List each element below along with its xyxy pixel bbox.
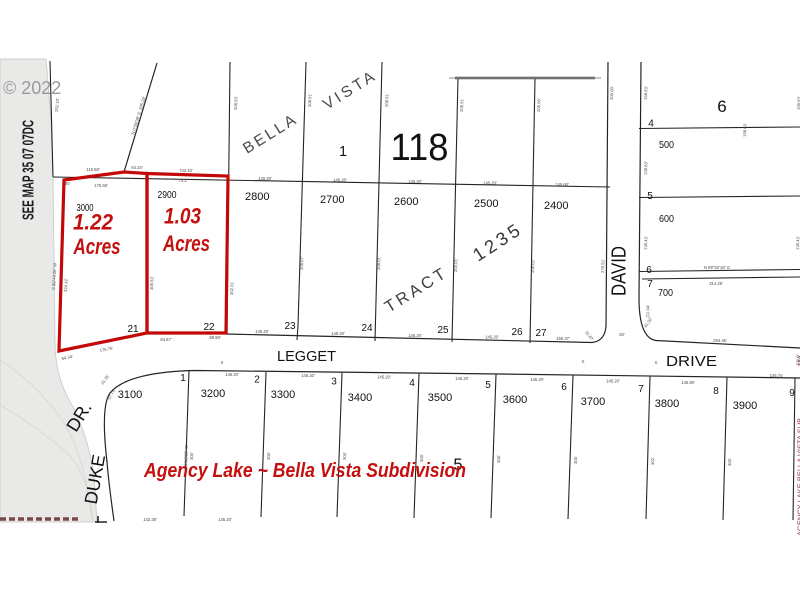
svg-text:145.20': 145.20' [218,517,232,522]
svg-text:300': 300' [419,454,424,462]
svg-text:© 2022: © 2022 [3,78,61,98]
svg-text:208.91': 208.91' [384,93,389,107]
svg-text:AGENCY LAKE BELLA VISTA SUB: AGENCY LAKE BELLA VISTA SUB [796,418,800,536]
svg-text:3700: 3700 [581,396,605,408]
svg-text:2700: 2700 [320,194,344,206]
svg-text:278.92': 278.92' [600,259,605,273]
svg-text:3: 3 [331,377,337,388]
svg-text:145.7g: 145.7g [770,373,783,378]
svg-text:205.00': 205.00' [536,98,541,112]
svg-text:1: 1 [339,144,347,160]
svg-text:74.2': 74.2' [179,178,188,183]
svg-text:24: 24 [361,323,373,334]
svg-text:145.20': 145.20' [301,373,315,378]
svg-text:145.20': 145.20' [483,181,497,186]
svg-text:88.98': 88.98' [209,335,220,340]
svg-text:145.20': 145.20' [606,379,620,384]
svg-text:314.29': 314.29' [709,281,723,286]
svg-text:139.63': 139.63' [643,161,648,175]
svg-text:Acres: Acres [162,231,210,256]
svg-text:7: 7 [638,384,644,395]
svg-text:145.20': 145.20' [331,331,345,336]
svg-text:22: 22 [203,322,215,333]
svg-text:84.67': 84.67' [160,337,171,342]
svg-text:111.0': 111.0' [795,354,800,365]
svg-text:25: 25 [437,325,449,336]
svg-text:600: 600 [659,213,674,225]
svg-text:5: 5 [647,191,653,202]
svg-text:742.10': 742.10' [179,168,193,173]
svg-text:S: S [655,360,658,365]
svg-text:145.20': 145.20' [455,376,469,381]
svg-text:2500: 2500 [474,198,498,210]
svg-text:3600: 3600 [503,394,527,406]
svg-text:208.02': 208.02' [530,259,535,273]
svg-text:145.20': 145.20' [255,329,269,334]
svg-text:3200: 3200 [201,388,225,400]
svg-text:3800: 3800 [655,398,679,410]
svg-text:300': 300' [342,452,347,460]
svg-text:252.10': 252.10' [54,98,60,112]
svg-text:145.20': 145.20' [485,335,499,340]
svg-text:145.90': 145.90' [681,380,695,385]
svg-text:DAVID: DAVID [609,246,631,296]
svg-text:302.91': 302.91' [229,281,234,295]
svg-text:145.20': 145.20' [530,377,544,382]
svg-text:305.63': 305.63' [149,276,154,290]
svg-text:3900: 3900 [733,400,757,412]
svg-text:145.20': 145.20' [333,178,347,183]
svg-text:2900: 2900 [158,190,177,201]
svg-text:Acres: Acres [73,234,121,259]
svg-text:208.01': 208.01' [376,256,381,270]
svg-text:294.45': 294.45' [713,338,727,343]
svg-text:158.63': 158.63' [643,86,648,100]
svg-text:5: 5 [485,380,491,391]
svg-text:4: 4 [648,119,654,130]
svg-text:111.04': 111.04' [645,305,650,318]
svg-text:300': 300' [573,456,578,464]
svg-text:145.20': 145.20' [377,375,391,380]
svg-text:2400: 2400 [544,200,568,212]
svg-text:S: S [221,360,224,365]
svg-text:118: 118 [391,127,449,169]
svg-text:145.20': 145.20' [408,333,422,338]
svg-text:208.93': 208.93' [233,96,238,110]
svg-text:6: 6 [717,97,726,116]
svg-text:302': 302' [650,457,655,465]
svg-text:208.07': 208.07' [299,256,304,270]
svg-text:26: 26 [511,327,523,338]
svg-text:300': 300' [189,452,194,460]
svg-text:324.42': 324.42' [63,278,69,292]
svg-text:500: 500 [659,139,674,151]
svg-text:9: 9 [789,388,795,399]
svg-text:3400: 3400 [348,392,372,404]
svg-text:60': 60' [619,332,625,337]
svg-text:N 89°52'18" E: N 89°52'18" E [704,265,730,270]
svg-text:23: 23 [284,321,296,332]
svg-text:300': 300' [266,452,271,460]
svg-text:158.63': 158.63' [742,123,747,137]
svg-text:700: 700 [658,287,673,299]
svg-text:N 0°09'38" W: N 0°09'38" W [183,445,189,470]
svg-text:146.20': 146.20' [225,372,239,377]
svg-text:LEGGET: LEGGET [277,348,336,365]
svg-text:21: 21 [127,324,139,335]
svg-text:3000: 3000 [77,203,94,214]
svg-text:208.91': 208.91' [307,93,312,107]
svg-text:3300: 3300 [271,389,295,401]
svg-text:3500: 3500 [428,392,452,404]
svg-text:7: 7 [647,279,653,290]
svg-text:139.43': 139.43' [643,236,648,250]
svg-text:SEE MAP 35 07 07DC: SEE MAP 35 07 07DC [21,120,38,220]
svg-text:S: S [582,359,585,364]
svg-text:2: 2 [254,375,260,386]
svg-text:8: 8 [713,386,719,397]
svg-text:115.68': 115.68' [86,167,99,172]
svg-text:60: 60 [65,181,70,186]
svg-text:DRIVE: DRIVE [666,353,717,370]
svg-text:300': 300' [727,458,732,466]
svg-text:2600: 2600 [394,196,418,208]
svg-text:4: 4 [409,378,415,389]
svg-text:3100: 3100 [118,389,142,401]
svg-text:64.34': 64.34' [131,165,142,170]
svg-text:176.68': 176.68' [94,183,108,188]
svg-text:6: 6 [561,382,567,393]
svg-text:140.20': 140.20' [258,176,272,181]
svg-text:1: 1 [180,373,186,384]
svg-text:208.91': 208.91' [459,98,464,112]
svg-text:Agency Lake ~ Bella Vista Subd: Agency Lake ~ Bella Vista Subdivision [143,459,466,482]
svg-text:1.03: 1.03 [164,204,201,229]
svg-text:145.20': 145.20' [408,179,422,184]
svg-text:205.00': 205.00' [609,86,614,100]
svg-text:158.63': 158.63' [796,96,800,110]
svg-text:155.37': 155.37' [556,336,570,341]
svg-text:142.28': 142.28' [143,517,157,522]
svg-text:203.01': 203.01' [453,258,458,272]
svg-text:27: 27 [535,328,547,339]
svg-text:139.43': 139.43' [795,236,800,250]
svg-text:2800: 2800 [245,191,269,203]
svg-text:145.60': 145.60' [555,182,569,187]
svg-text:6: 6 [646,265,652,276]
svg-text:300': 300' [496,455,501,463]
